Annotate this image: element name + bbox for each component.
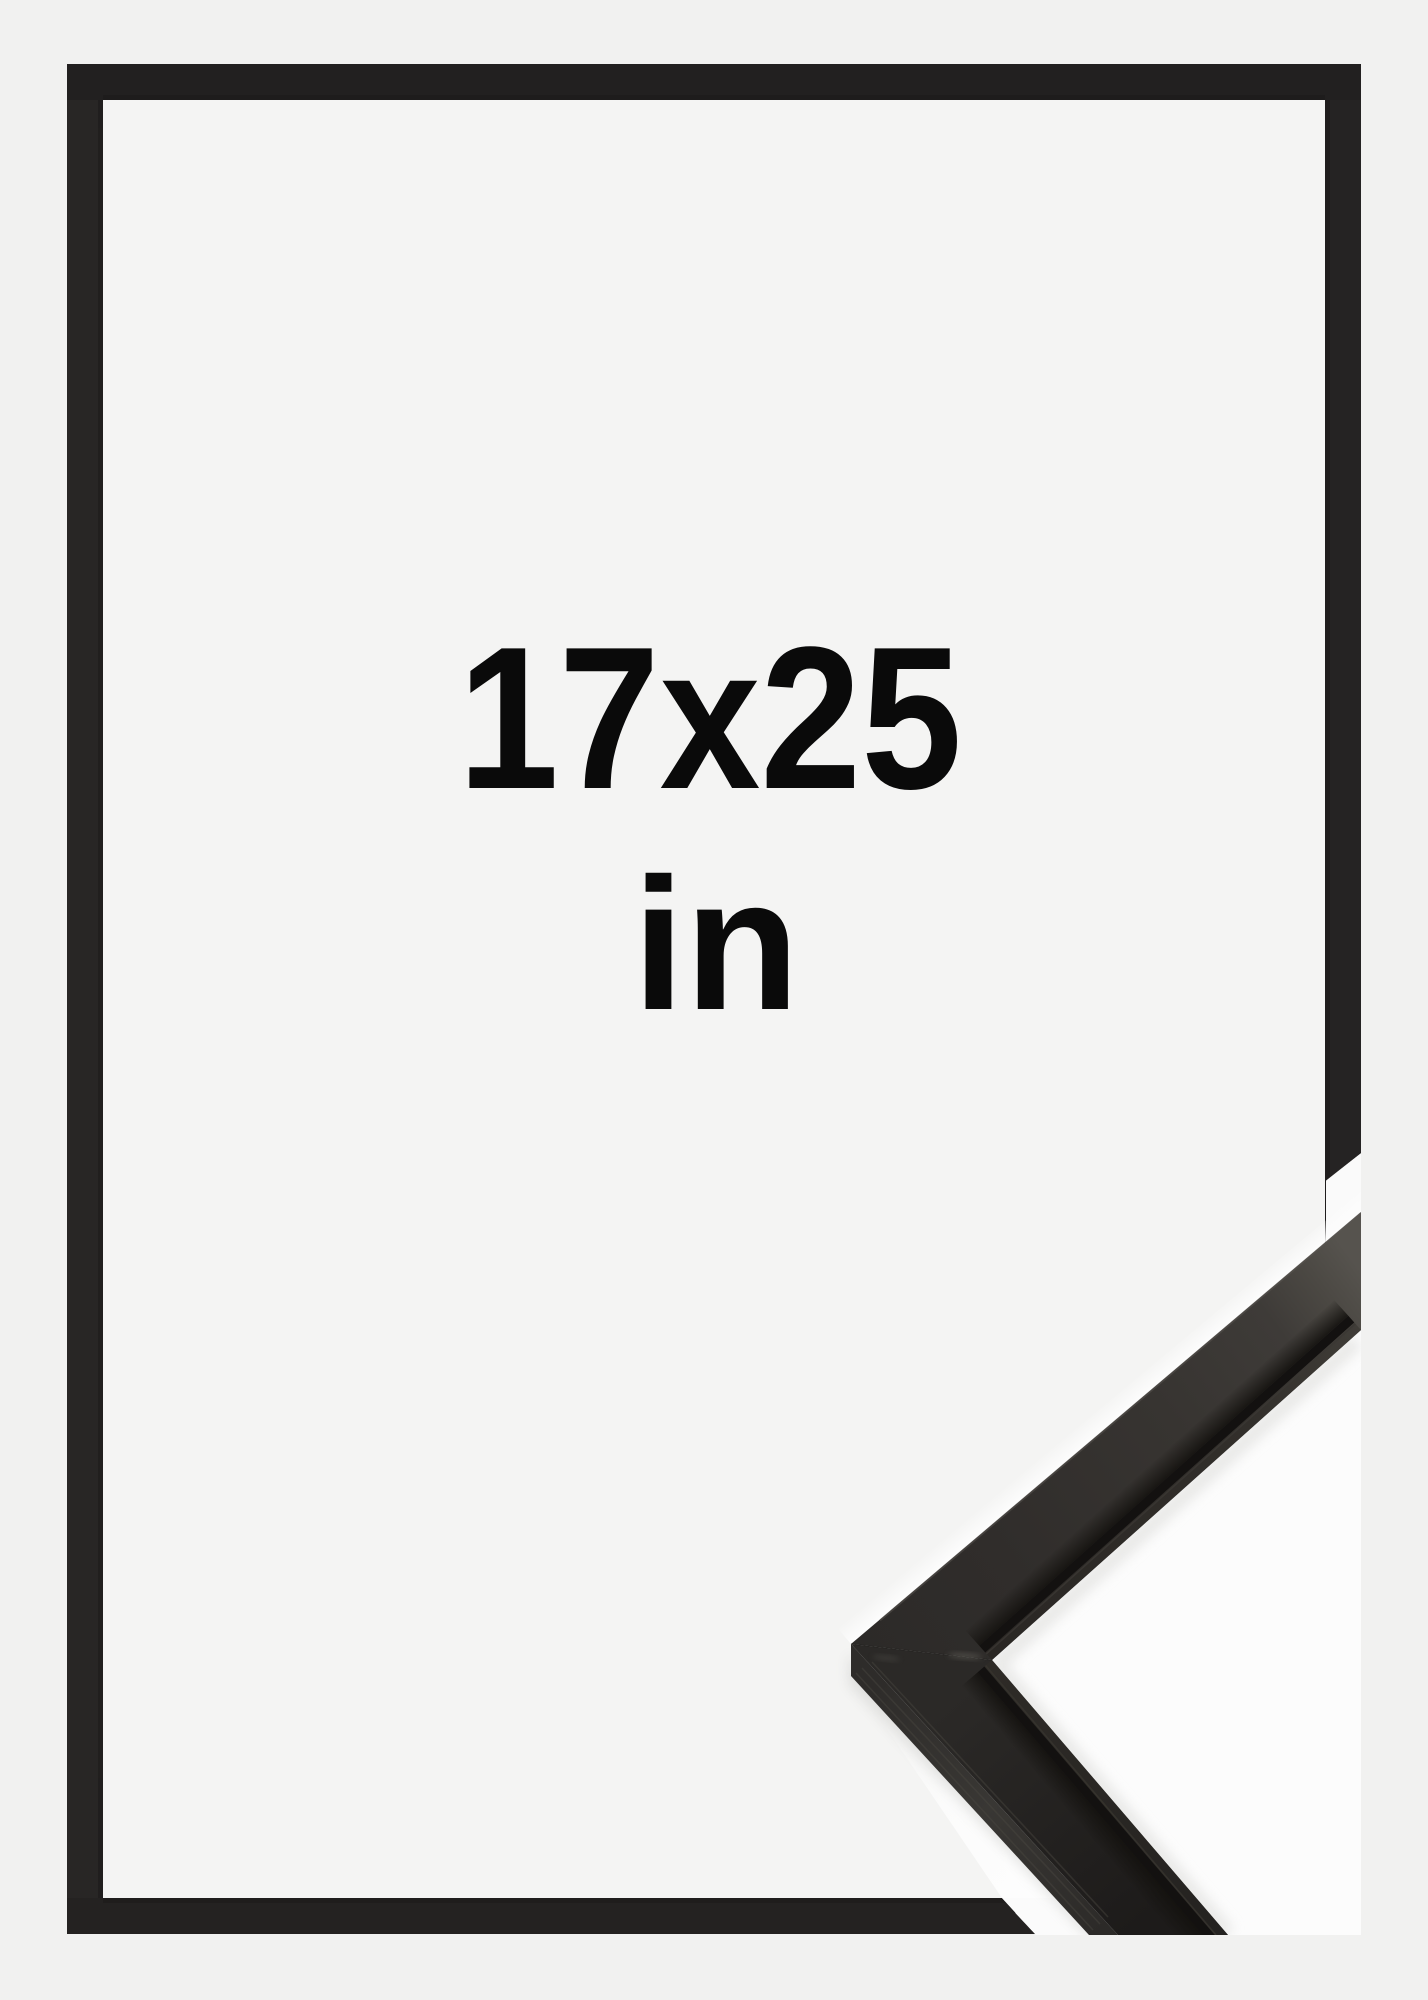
svg-text:17x25: 17x25: [458, 605, 962, 832]
svg-text:in: in: [632, 839, 799, 1049]
